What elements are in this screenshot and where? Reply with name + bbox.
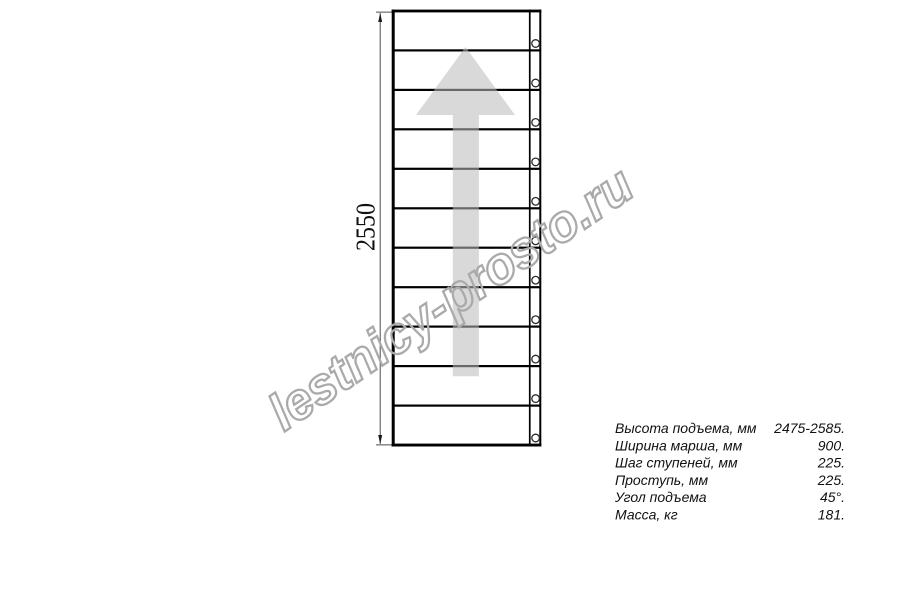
svg-text:45°.: 45°. bbox=[820, 489, 845, 505]
svg-text:900.: 900. bbox=[818, 437, 845, 453]
svg-text:181.: 181. bbox=[818, 506, 845, 522]
svg-text:2475-2585.: 2475-2585. bbox=[773, 420, 845, 436]
svg-text:225.: 225. bbox=[817, 472, 845, 488]
svg-text:225.: 225. bbox=[817, 455, 845, 471]
svg-text:Масса, кг: Масса, кг bbox=[615, 506, 678, 522]
svg-text:2550: 2550 bbox=[351, 203, 381, 251]
svg-text:Проступь, мм: Проступь, мм bbox=[615, 472, 709, 488]
svg-text:Угол подъема: Угол подъема bbox=[614, 489, 707, 505]
svg-text:Ширина марша, мм: Ширина марша, мм bbox=[615, 437, 743, 453]
svg-text:Шаг ступеней, мм: Шаг ступеней, мм bbox=[615, 455, 738, 471]
svg-text:Высота подъема, мм: Высота подъема, мм bbox=[615, 420, 757, 436]
